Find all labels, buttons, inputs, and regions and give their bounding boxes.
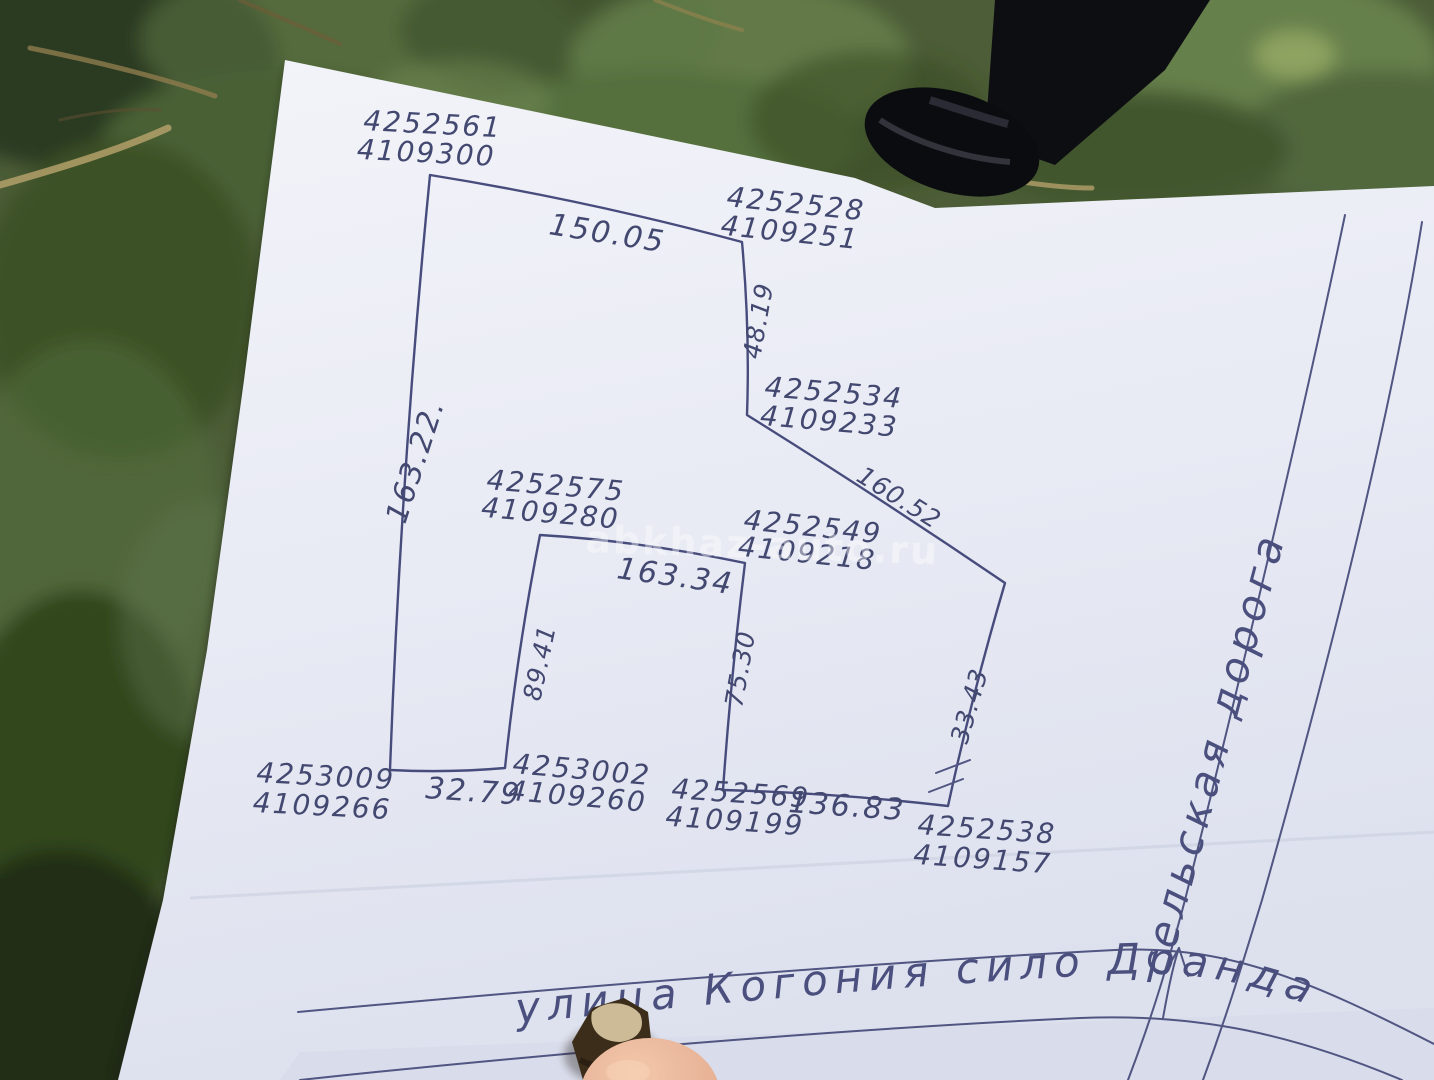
corner-coordinate-label: 4252561 4109300 — [356, 104, 503, 173]
corner-coordinate-label: 4253002 4109260 — [507, 747, 652, 819]
corner-coordinate-label: 4252538 4109157 — [912, 808, 1057, 881]
edge-length-label: 32.79 — [424, 771, 522, 813]
corner-coordinate-label: 4253009 4109266 — [252, 756, 396, 826]
corner-coordinate-label: 4252534 4109233 — [759, 370, 905, 444]
photo-of-hand-drawn-land-plot-sketch: 4252561 4109300 4252528 4109251 4252534 … — [0, 0, 1434, 1080]
